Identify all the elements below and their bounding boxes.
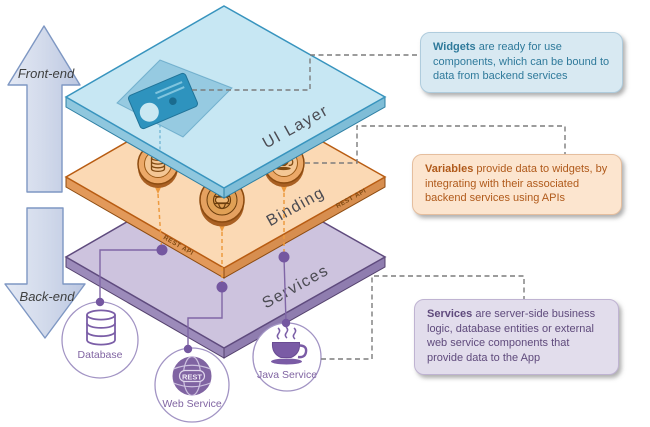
layer-dot xyxy=(217,282,228,293)
layer-dot xyxy=(157,245,168,256)
note-services-lead: Services xyxy=(427,308,472,320)
web-service: REST Web Service xyxy=(155,345,229,422)
java-service-label: Java Service xyxy=(257,369,317,381)
note-widgets: Widgets are ready for use components, wh… xyxy=(420,32,623,93)
web-service-label: Web Service xyxy=(162,398,221,410)
rest-globe-icon: REST xyxy=(173,357,212,396)
note-variables-lead: Variables xyxy=(425,163,473,175)
database-label: Database xyxy=(78,349,123,361)
web-service-anchor-dot xyxy=(184,345,192,353)
rest-badge: REST xyxy=(182,373,202,382)
front-end-label: Front-end xyxy=(18,66,75,81)
database-anchor-dot xyxy=(96,298,104,306)
back-end-label: Back-end xyxy=(20,289,76,304)
architecture-diagram: Front-end Back-end Services Database xyxy=(0,0,650,427)
database-service: Database xyxy=(62,298,138,378)
java-service-anchor-dot xyxy=(282,319,290,327)
layer-dot xyxy=(279,252,290,263)
note-widgets-lead: Widgets xyxy=(433,41,476,53)
note-services: Services are server-side business logic,… xyxy=(414,299,619,375)
note-variables: Variables provide data to widgets, by in… xyxy=(412,154,622,215)
